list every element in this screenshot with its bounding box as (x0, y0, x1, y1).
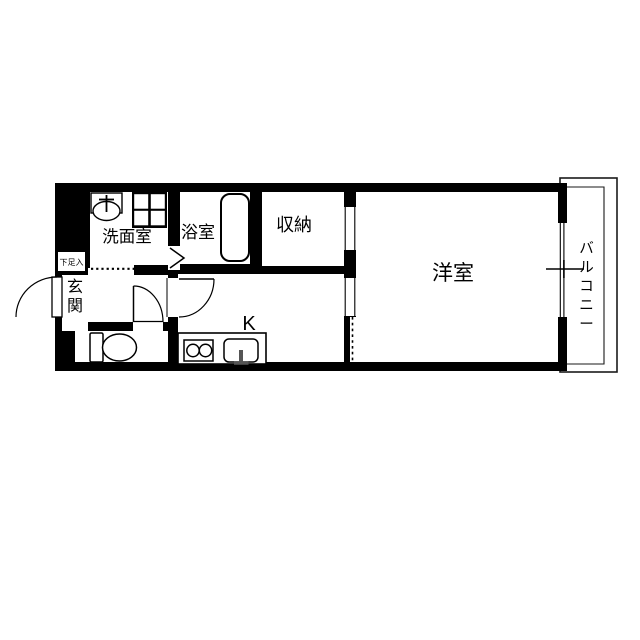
kitchen-label: K (242, 313, 256, 335)
entrance-door-swing-arc (16, 277, 57, 317)
hall-top-wall-stub (134, 265, 168, 275)
storage-label: 収納 (276, 215, 312, 235)
entrance-door-leaf (52, 277, 62, 317)
toilet-door-opening (133, 322, 163, 331)
kitchen-counter (178, 333, 266, 364)
kitchen-door-opening (166, 278, 180, 317)
two-burner-stove-icon (184, 340, 213, 361)
washbasin-icon (91, 193, 122, 221)
storage-door-opening (344, 207, 356, 250)
room-door-opening (344, 278, 356, 316)
washroom-label: 洗面室 (102, 227, 152, 246)
balcony-label: バルコニー (579, 241, 594, 333)
hall-floor (88, 268, 168, 322)
washing-machine-pan-icon (132, 192, 167, 228)
bathtub-icon (221, 194, 249, 261)
kitchen-sink-icon (224, 339, 258, 364)
window-opening (558, 223, 567, 317)
floor-plan-canvas: 洗面室 浴室 収納 洋室 K 下足入 玄関 バルコニー (0, 0, 640, 640)
bathroom-label: 浴室 (181, 223, 215, 242)
floor-plan: 洗面室 浴室 収納 洋室 K 下足入 玄関 バルコニー (0, 0, 640, 640)
toilet-icon (90, 333, 137, 362)
western-room-label: 洋室 (432, 262, 474, 285)
bathroom-door-opening (168, 246, 180, 270)
shoe-storage-label: 下足入 (60, 258, 84, 267)
